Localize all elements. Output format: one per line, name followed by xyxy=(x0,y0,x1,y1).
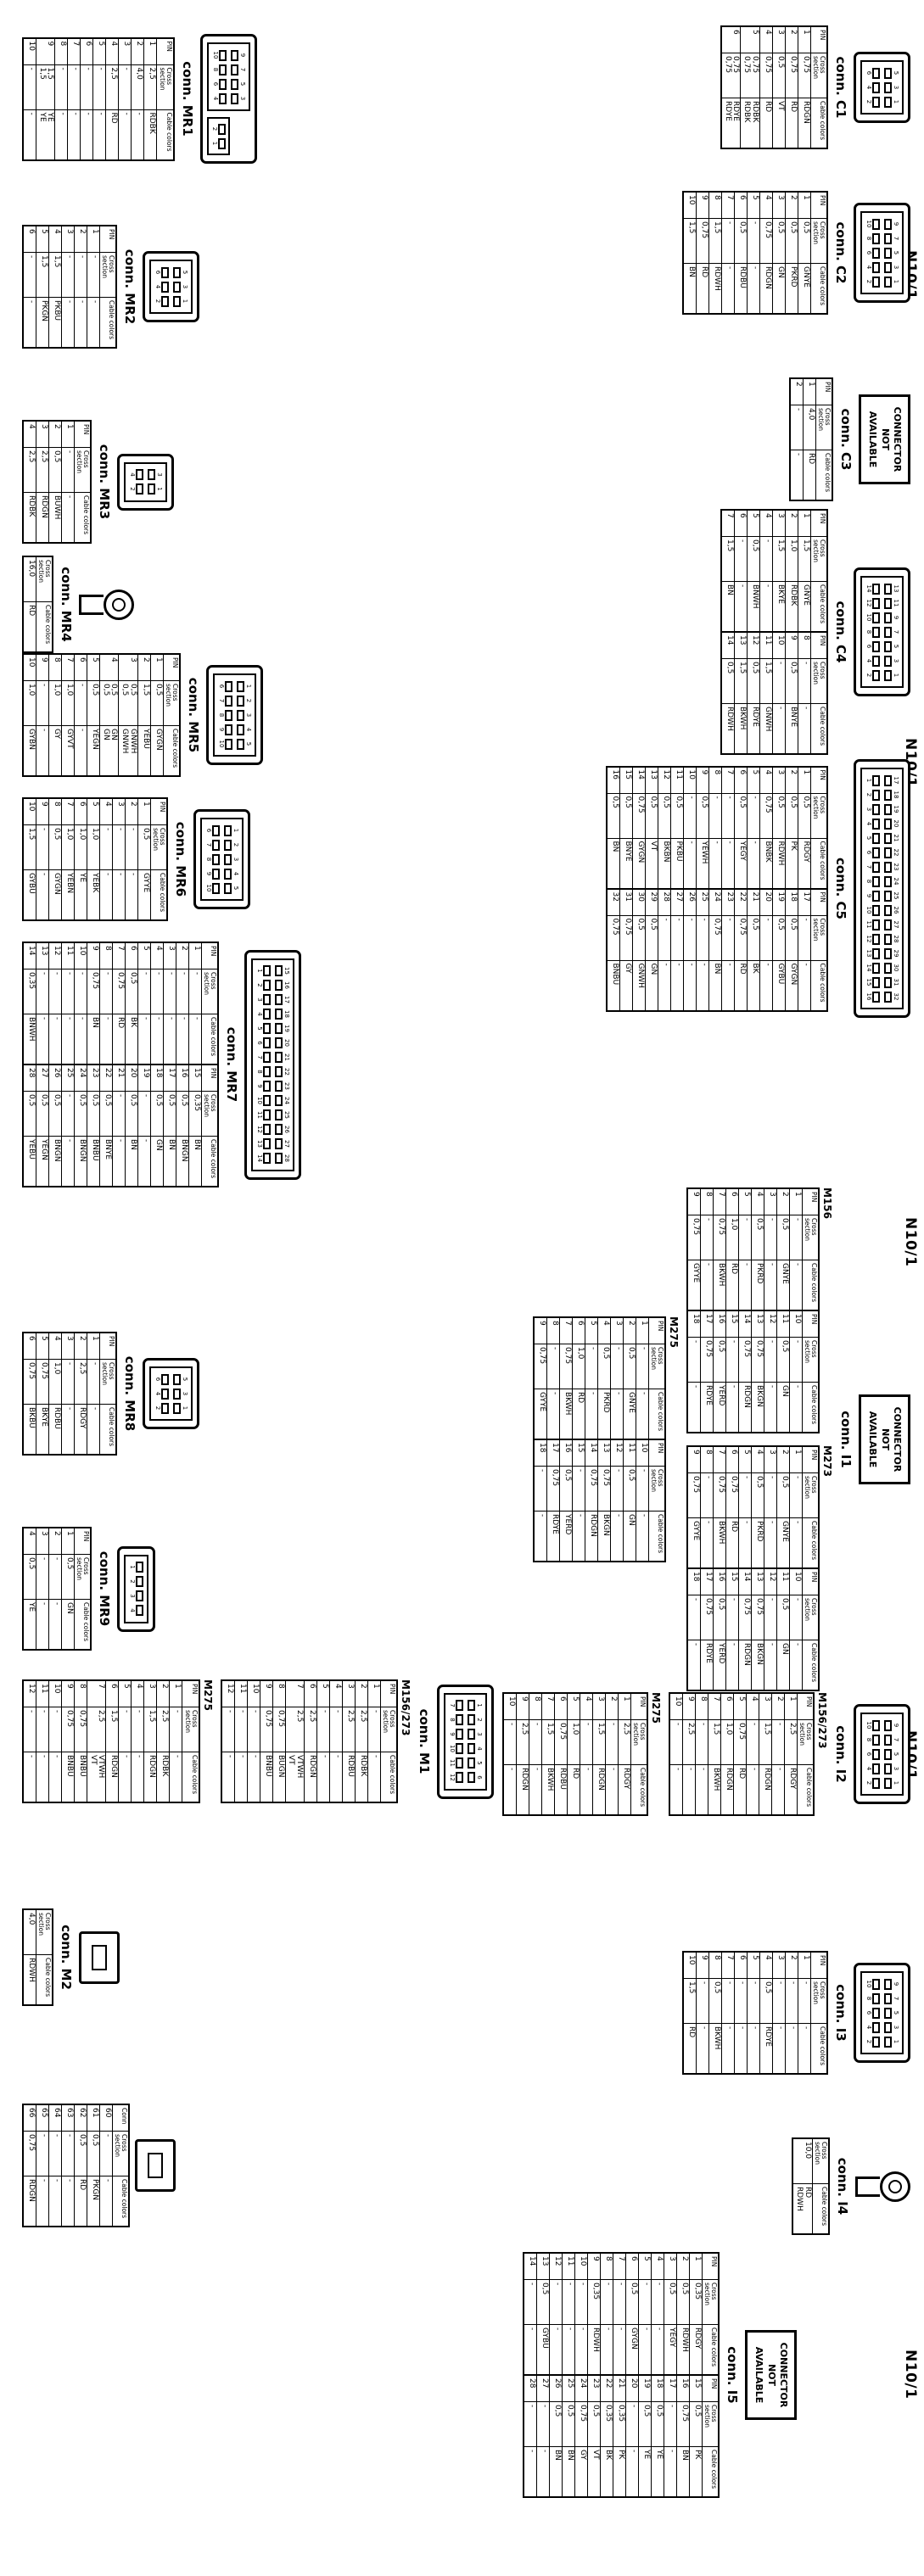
table-header-row: PINCross sectionCable colors xyxy=(810,1952,827,2074)
table-cell: VT xyxy=(645,838,658,889)
pin-table: PINCross sectionCable colors1--22,5RDGY3… xyxy=(22,1332,117,1456)
pin-slot-icon xyxy=(456,1700,463,1711)
table-cell: VT xyxy=(587,2447,600,2498)
pin-number-label: 8 xyxy=(205,858,211,861)
table-cell: 7 xyxy=(721,192,734,219)
table-cell: 1 xyxy=(798,26,810,53)
table-wrap: Cross sectionCable colors4,0RDWH xyxy=(22,1908,53,2006)
table-row: 5-- xyxy=(317,1680,330,1802)
table-header-cell: Cross section xyxy=(702,2280,719,2325)
table-cell: 6 xyxy=(81,38,93,65)
pin-slot-icon xyxy=(884,2022,892,2033)
connector-tables: PINCross sectionCable colors14,0RD2-- xyxy=(789,377,833,501)
pin-number-label: 4 xyxy=(865,86,871,89)
table-cell: 0,5 xyxy=(785,793,798,838)
connector-not-available-text: CONNECTOR xyxy=(777,2343,789,2408)
table-cell: 4 xyxy=(49,1333,62,1360)
page-viewport: N10/1N10/1N10/1N10/1N10/1531642conn. C1P… xyxy=(0,0,924,2576)
housing-pin-field: 12345678910 xyxy=(200,818,244,901)
table-cell: 21 xyxy=(747,889,759,916)
pin-slot-icon xyxy=(884,1993,892,2004)
table-wrap: M156/273PINCross sectionCable colors12,5… xyxy=(669,1692,828,1816)
table-cell: - xyxy=(36,825,49,870)
pin-slot-icon xyxy=(884,1763,892,1774)
table-cell: YE xyxy=(75,870,87,921)
table-cell: - xyxy=(789,1518,802,1569)
table-cell: - xyxy=(572,1467,585,1512)
conn-m3-unlabeled-housing-icon xyxy=(135,2139,176,2192)
pin-number-label: 6 xyxy=(865,71,871,75)
pin-cell: 7 xyxy=(884,1734,899,1746)
pin-cell: 7 xyxy=(231,64,245,75)
table-row: 3-- xyxy=(62,226,75,348)
table-cell: RDWH xyxy=(772,838,785,889)
table-cell: 0,5 0,5 xyxy=(119,681,137,726)
table-cell: BN xyxy=(683,264,697,315)
table-header-cell: Cable colors xyxy=(702,2325,719,2376)
table-cell: YEGN xyxy=(36,1137,49,1187)
table-cell: - xyxy=(700,1260,713,1311)
table-cell: 0,5 xyxy=(87,2132,100,2176)
pin-cell: 3 xyxy=(884,655,899,667)
pin-number-label: 1 xyxy=(182,1406,188,1410)
table-row: 3--170,5BN xyxy=(164,942,176,1187)
table-cell: - xyxy=(546,1344,559,1389)
table-cell: GY xyxy=(49,726,62,777)
table-header-cell: Cable colors xyxy=(157,109,174,160)
pin-number-label: 5 xyxy=(893,645,899,648)
pin-slot-icon xyxy=(884,977,892,988)
pin-slot-icon xyxy=(161,296,169,307)
table-cell: - xyxy=(636,1344,648,1389)
table-cell: - xyxy=(734,582,747,633)
table-cell: 5 xyxy=(741,26,759,53)
table-cell: 18 xyxy=(534,1439,547,1467)
table-row: 10-- xyxy=(669,1693,683,1815)
table-cell: 0,75 xyxy=(738,1595,751,1640)
pin-number-label: 3 xyxy=(232,858,238,861)
table-cell: 14 xyxy=(524,2253,537,2280)
table-row: 31,5RDGN xyxy=(144,1680,157,1802)
table-row: 6--131,5BKWH xyxy=(734,510,747,754)
connector-tables: PINCross sectionCable colors12,5RDBK24,0… xyxy=(22,37,175,161)
pin-table: PINCross sectionCable colors10,5GYYE2--3… xyxy=(22,797,168,921)
table-header-row: PINCross sectionCable colors xyxy=(100,1333,117,1455)
table-header-row: PINCross sectionCable colors xyxy=(75,1528,92,1650)
table-cell: 22 xyxy=(600,2375,613,2402)
table-cell: 2,5 xyxy=(618,1720,630,1765)
table-header-cell: Cable colors xyxy=(797,1765,814,1816)
table-cell: 10 xyxy=(503,1693,517,1720)
conn-i2-group: 97531108642conn. I2M156/273PINCross sect… xyxy=(502,1692,910,1816)
table-cell: RD xyxy=(106,109,119,160)
table-cell: - xyxy=(738,1260,751,1311)
pin-cell: 7 xyxy=(884,232,899,244)
table-cell: 9 xyxy=(36,798,49,825)
table-cell: 2 xyxy=(49,1528,62,1555)
table-cell: 26 xyxy=(683,889,696,916)
table-cell: - xyxy=(683,960,696,1011)
table-cell: 26 xyxy=(49,1064,62,1092)
table-cell: RDBK xyxy=(785,582,798,633)
table-cell: 0,75 xyxy=(687,1473,701,1518)
table-header-cell: PIN xyxy=(802,1310,819,1338)
housing-pin-field: 1718192021222324252627282930313212345678… xyxy=(860,768,904,1009)
table-cell: - xyxy=(138,1137,151,1187)
pin-table: PINCross sectionCable colors1--22,5RDBK3… xyxy=(22,1679,200,1803)
pin-row: 1234567891011121314 xyxy=(256,965,271,1165)
table-cell: 2 xyxy=(771,1693,784,1720)
table-cell: BKGN xyxy=(751,1383,764,1433)
table-cell: - xyxy=(789,1383,802,1433)
table-cell: RD xyxy=(725,1518,738,1569)
connector-title: conn. C2 xyxy=(833,222,848,284)
table-row: 120,5BKBN28-- xyxy=(658,767,670,1011)
table-row: 31,5RDGN xyxy=(759,1693,771,1815)
table-row: 101,0GYBN xyxy=(23,654,36,776)
table-cell: 10,0 xyxy=(792,2138,812,2184)
pin-number-label: 3 xyxy=(893,659,899,662)
conn-i2-housing-icon: 97531108642 xyxy=(854,1704,910,1804)
pin-number-label: 4 xyxy=(129,472,135,476)
connector-tables: M156/273PINCross sectionCable colors1--2… xyxy=(22,1679,412,1803)
pin-number-label: 20 xyxy=(283,1039,289,1047)
conn-mr5-group: 12345678910conn. MR5PINCross sectionCabl… xyxy=(22,653,263,777)
conn-mr1-group: 97531086421conn. MR1PINCross sectionCabl… xyxy=(22,34,257,164)
table-cell: - xyxy=(683,915,696,960)
table-cell: - xyxy=(721,838,734,889)
pin-number-label: 1 xyxy=(893,100,899,103)
table-band: PINCross sectionCable colorsPINCross sec… xyxy=(22,942,219,1187)
table-header-cell: Cross section xyxy=(648,1344,665,1389)
table-cell: 1,5 xyxy=(23,825,36,870)
table-cell: YE YE xyxy=(36,109,55,160)
pin-number-label: 18 xyxy=(893,791,899,799)
housing-pin-field: 97531108642 xyxy=(860,211,904,294)
table-cell: 9 xyxy=(696,192,708,219)
table-cell: 0,5 xyxy=(708,1979,721,2024)
table-cell: 12 xyxy=(764,1568,776,1595)
pin-number-label: 9 xyxy=(893,616,899,619)
pin-cell: 8 xyxy=(256,1066,271,1078)
table-cell: 24 xyxy=(708,889,721,916)
table-cell: BKYE xyxy=(36,1405,49,1456)
connector-not-available-box: CONNECTORNOTAVAILABLE xyxy=(859,1394,910,1485)
table-cell: YERD xyxy=(713,1383,725,1433)
table-cell: 0,5 xyxy=(747,915,759,960)
pin-number-label: 2 xyxy=(865,1781,871,1785)
conn-c2-group: 97531108642conn. C2PINCross sectionCable… xyxy=(682,191,910,315)
table-cell: 1 xyxy=(189,942,202,969)
table-band: PINCross sectionCable colors12,5RDBK24,0… xyxy=(22,37,175,161)
table-wrap: PINCross sectionCable colorsPINCross sec… xyxy=(720,509,828,755)
pin-number-label: 4 xyxy=(245,728,251,731)
table-row: 2-- xyxy=(126,798,138,920)
pin-cell: 19 xyxy=(275,1023,289,1035)
table-cell: GN xyxy=(776,1383,789,1433)
table-cell: 8 xyxy=(49,654,62,681)
pin-number-label: 2 xyxy=(154,1406,160,1410)
pin-number-label: 3 xyxy=(893,265,899,269)
table-cell: 0,5 xyxy=(607,793,620,838)
pin-table: PINCross sectionCable colorsPINCross sec… xyxy=(686,1187,820,1433)
table-row: 1-- xyxy=(87,1333,100,1455)
pin-row: 678910 xyxy=(205,824,220,894)
table-cell: 3 xyxy=(772,510,785,537)
table-cell: - xyxy=(625,2402,638,2447)
table-row: 1-- xyxy=(798,1952,810,2074)
table-cell: 19 xyxy=(138,1064,151,1092)
pin-slot-icon xyxy=(231,64,238,75)
pin-cell: 1 xyxy=(884,276,899,288)
ring-hole-icon xyxy=(888,2180,902,2193)
table-cell: - xyxy=(747,1979,759,2024)
table-cell: 3 xyxy=(772,1952,785,1979)
table-cell: BN xyxy=(562,2447,574,2498)
table-cell: 1,5 xyxy=(798,537,810,582)
table-row: 10-- xyxy=(49,1680,62,1802)
table-cell: - xyxy=(734,1979,747,2024)
pin-slot-icon xyxy=(468,1700,475,1711)
pin-cell: 6 xyxy=(865,2007,880,2019)
pin-number-label: 2 xyxy=(865,673,871,677)
table-cell: 4,0 xyxy=(803,405,815,450)
table-cell: YEGN xyxy=(87,726,100,777)
housing-pin-field: 1516171819202122232425262728123456789101… xyxy=(251,958,294,1171)
table-cell: - xyxy=(682,1765,695,1816)
table-band: M156/273PINCross sectionCable colors12,5… xyxy=(669,1692,828,1816)
table-wrap: M275PINCross sectionCable colorsPINCross… xyxy=(533,1316,680,1562)
table-cell: - xyxy=(524,2402,537,2447)
table-cell: - xyxy=(725,1383,738,1433)
pin-number-label: 4 xyxy=(212,97,218,100)
table-header-cell: PIN xyxy=(797,1693,814,1720)
pin-cell: 28 xyxy=(884,933,899,945)
pin-cell: 14 xyxy=(256,1153,271,1165)
table-row: 60,75RD15-- xyxy=(725,1446,738,1690)
table-row: 8-- xyxy=(529,1693,541,1815)
table-cell: 2 xyxy=(785,510,798,537)
table-cell: - xyxy=(138,969,151,1014)
pin-number-label: 1 xyxy=(156,487,162,490)
table-row: 50,75BKYE xyxy=(36,1333,49,1455)
table-cell: 10 xyxy=(23,654,36,681)
table-cell: - xyxy=(100,969,113,1014)
pin-slot-icon xyxy=(884,68,892,79)
table-row: 64-- xyxy=(49,2104,62,2227)
table-cell: 3 xyxy=(764,1446,776,1473)
table-cell: 0,5 xyxy=(151,1092,164,1137)
table-cell: 13 xyxy=(536,2253,549,2280)
pin-number-label: 9 xyxy=(893,1724,899,1727)
pin-slot-icon xyxy=(219,50,227,61)
table-row: 30,5VT xyxy=(772,26,785,148)
table-cell: 1 xyxy=(368,1680,381,1707)
table-cell: GN xyxy=(772,264,785,315)
table-cell: 0,5 xyxy=(751,1215,764,1260)
table-cell: 8 xyxy=(49,798,62,825)
pin-slot-icon xyxy=(884,598,892,609)
table-row: 160,5BN320,75BNBU xyxy=(607,767,620,1011)
pin-slot-icon xyxy=(224,854,232,865)
pin-cell: 3 xyxy=(173,1388,188,1400)
table-header-cell: PIN xyxy=(810,889,827,916)
housing-pin-field: 3142 xyxy=(124,462,167,502)
table-cell: YERD xyxy=(713,1640,725,1691)
housing-pin-field: 531642 xyxy=(149,1366,193,1421)
pin-cell: 11 xyxy=(865,919,880,930)
table-cell: 1 xyxy=(170,1680,182,1707)
table-row: 3-- xyxy=(62,1333,75,1455)
pin-cell: 11 xyxy=(884,597,899,609)
pin-slot-icon xyxy=(872,775,880,786)
table-cell: 16 xyxy=(176,1064,189,1092)
table-row: 60,75RDBU xyxy=(554,1693,567,1815)
table-cell: 13 xyxy=(751,1310,764,1338)
table-row: 9-- xyxy=(36,798,49,920)
table-cell: 3 xyxy=(164,942,176,969)
pin-cell: 14 xyxy=(865,962,880,974)
pin-cell: 1 xyxy=(129,1562,143,1573)
table-cell: 9 xyxy=(36,654,49,681)
table-cell: BNBU xyxy=(87,1137,100,1187)
table-cell: - xyxy=(759,915,772,960)
conn-c3-group: CONNECTORNOTAVAILABLEconn. C3PINCross se… xyxy=(789,377,910,501)
table-row: 10,0RD RDWH xyxy=(792,2138,812,2234)
pin-number-label: 2 xyxy=(865,280,871,283)
pin-number-label: 4 xyxy=(865,2026,871,2029)
pin-number-label: 4 xyxy=(256,1012,262,1015)
pin-number-label: 10 xyxy=(865,1981,871,1988)
table-header-cell: Cross section xyxy=(802,1215,819,1260)
table-row: 1-- xyxy=(368,1680,381,1802)
pin-cell: 6 xyxy=(154,1373,169,1385)
table-row: 10--240,75GY xyxy=(574,2253,587,2497)
pin-number-label: 8 xyxy=(865,880,871,883)
pin-cell: 6 xyxy=(205,824,220,836)
table-cell: - xyxy=(658,915,670,960)
pin-slot-icon xyxy=(884,2008,892,2019)
table-cell: 31 xyxy=(619,889,632,916)
table-cell: 3 xyxy=(664,2253,676,2280)
table-cell: BNWH xyxy=(23,1014,36,1065)
table-cell: 13 xyxy=(734,632,747,659)
table-header-cell: Cable colors xyxy=(810,582,827,633)
table-cell: 9 xyxy=(36,38,55,65)
table-cell: 0,5 xyxy=(23,1555,36,1600)
table-cell: 2,5 xyxy=(144,64,157,109)
table-cell: GYGN xyxy=(632,838,645,889)
table-cell: - xyxy=(49,1555,62,1600)
pin-slot-icon xyxy=(872,2037,880,2048)
table-header-row: Cross sectionCable colors xyxy=(36,1909,53,2005)
pin-number-label: 5 xyxy=(239,82,245,86)
table-row: 12,5RDGY xyxy=(784,1693,797,1815)
pin-cell: 27 xyxy=(884,919,899,930)
table-cell: 7 xyxy=(721,510,735,537)
table-cell: - xyxy=(651,2325,664,2376)
housing-cavity-icon xyxy=(92,1945,107,1970)
pin-number-label: 4 xyxy=(476,1746,482,1750)
pin-slot-icon xyxy=(237,681,244,692)
table-cell: BN xyxy=(549,2447,562,2498)
table-cell: 0,5 xyxy=(49,448,62,493)
table-header-cell: Cross section xyxy=(810,53,827,98)
connector-tables: Cross sectionCable colors4,0RDWH xyxy=(22,1908,53,2006)
table-cell: 0,5 xyxy=(676,2280,689,2325)
table-cell: 1,0 xyxy=(62,825,75,870)
table-cell: - xyxy=(62,253,75,298)
table-header-cell: PIN xyxy=(202,1064,219,1092)
table-cell: - xyxy=(100,2176,113,2227)
pin-slot-icon xyxy=(219,93,227,104)
pin-slot-icon xyxy=(212,825,220,836)
table-band: PINCross sectionCable colors14,0RD2-- xyxy=(789,377,833,501)
table-wrap: ConnCross sectionCable colors60--610,5PK… xyxy=(22,2104,130,2227)
table-header-cell: PIN xyxy=(630,1693,647,1720)
pin-slot-icon xyxy=(872,627,880,638)
pin-table: PINCross sectionCable colors1--20,5BUWH3… xyxy=(22,420,92,544)
table-header-row: PINCross sectionCable colorsPINCross sec… xyxy=(810,510,827,754)
table-cell: 9 xyxy=(516,1693,529,1720)
table-cell: BKBN xyxy=(658,838,670,889)
table-row: 11--250,5BN xyxy=(562,2253,574,2497)
table-cell: - xyxy=(664,2447,676,2498)
table-cell: 3 xyxy=(759,1693,771,1720)
pin-slot-icon xyxy=(872,2008,880,2019)
table-band: PINCross sectionCable colors10,5GYYE2--3… xyxy=(22,797,168,921)
housing-pin-field: 531642 xyxy=(860,60,904,115)
table-row: 92,5- xyxy=(682,1693,695,1815)
conn-c5-housing-icon: 1718192021222324252627282930313212345678… xyxy=(854,759,910,1018)
table-cell: 0,5 xyxy=(776,1215,789,1260)
table-header-cell: Cross section xyxy=(630,1720,647,1765)
table-cell: RDGN xyxy=(738,1383,751,1433)
table-cell: - xyxy=(23,109,36,160)
table-cell: RD xyxy=(113,1014,126,1065)
table-cell: 4 xyxy=(100,798,113,825)
table-cell: BN xyxy=(189,1137,202,1187)
table-cell: - xyxy=(764,1383,776,1433)
table-row: 5--210,5BK xyxy=(747,767,759,1011)
table-row: 2-- xyxy=(75,226,87,348)
table-cell: 6 xyxy=(23,226,36,253)
connector-title: conn. I4 xyxy=(835,2158,850,2216)
connector-title: conn. MR7 xyxy=(224,1027,239,1102)
connector-title: conn. I2 xyxy=(833,1725,848,1783)
table-row: 11-- xyxy=(36,1680,49,1802)
pin-cell: 4 xyxy=(865,261,880,273)
pin-slot-icon xyxy=(263,1066,271,1077)
table-cell: RDYE xyxy=(546,1512,559,1562)
conn-mr9-housing-icon: 1234 xyxy=(117,1546,155,1632)
table-cell: 0,5 xyxy=(734,793,747,838)
pin-slot-icon xyxy=(872,1979,880,1990)
table-row: 50,5BNWH120,5RDYE xyxy=(747,510,759,754)
pin-slot-icon xyxy=(161,267,169,278)
table-cell: - xyxy=(700,1215,713,1260)
pin-number-label: 9 xyxy=(893,1982,899,1986)
pin-slot-icon xyxy=(872,670,880,681)
table-header-cell: Cross section xyxy=(75,1555,92,1600)
pin-cell: 9 xyxy=(218,724,232,735)
table-cell: 66 xyxy=(23,2104,36,2132)
table-header-row: PINCross sectionCable colors xyxy=(810,192,827,314)
table-cell: 2 xyxy=(176,942,189,969)
table-row: 3-- xyxy=(36,1528,49,1650)
table-row: 2--160,5BNGN xyxy=(176,942,189,1187)
table-cell: 0,5 xyxy=(75,1092,87,1137)
